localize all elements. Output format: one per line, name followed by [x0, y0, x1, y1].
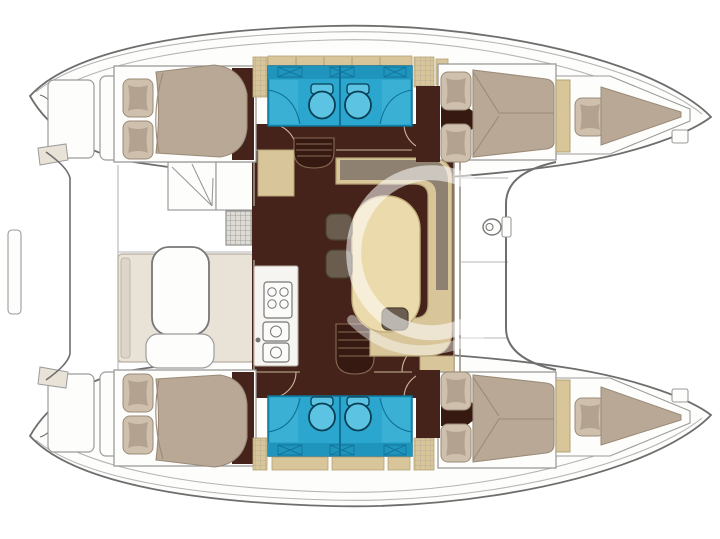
port-hull-steps: [294, 138, 334, 168]
port-bow-fitting: [672, 130, 688, 143]
cockpit-grate-grid: [226, 211, 252, 245]
dinghy-davit: [8, 230, 21, 314]
shower-tray-right: [382, 398, 410, 442]
locker-texture: [414, 57, 434, 87]
pillow: [441, 72, 471, 110]
pillow: [123, 79, 153, 117]
cockpit-bench-back: [121, 258, 130, 358]
cockpit-table: [152, 247, 209, 335]
starboard-fwd-bulkhead: [556, 380, 570, 452]
port-aft-bed: [156, 65, 247, 157]
locker-texture: [253, 57, 267, 97]
pillow: [441, 124, 471, 162]
pillow: [123, 416, 153, 454]
windlass-box: [502, 217, 511, 237]
pillow: [441, 372, 471, 410]
aft-crossbeam-line: [46, 152, 70, 380]
galley: [254, 266, 298, 366]
toilet: [345, 397, 371, 431]
starboard-boarding-step: [38, 367, 68, 388]
sink-1: [263, 322, 289, 341]
pillow: [123, 374, 153, 412]
starboard-locker-box: [332, 457, 384, 470]
starboard-fwd-corridor: [416, 370, 440, 438]
starboard-locker-box: [272, 457, 328, 470]
cockpit-locker: [216, 162, 254, 210]
starboard-locker-box: [388, 457, 410, 470]
aft-platform: [8, 152, 70, 380]
helm-seat: [146, 334, 214, 368]
sink-2: [263, 343, 289, 362]
starboard-aft-bed: [156, 375, 247, 467]
shower-tray-left: [270, 80, 298, 124]
stove: [264, 282, 292, 318]
pillow: [441, 424, 471, 462]
shower-tray-left: [270, 398, 298, 442]
toilet: [309, 397, 335, 431]
starboard-bathroom: [253, 396, 434, 470]
port-fwd-corridor: [416, 86, 440, 162]
locker-texture: [253, 438, 267, 470]
port-fwd-bulkhead: [556, 80, 570, 152]
nav-cabinet: [420, 356, 454, 372]
galley-faucet: [256, 338, 261, 343]
port-boarding-step: [38, 144, 68, 165]
starboard-bow-fitting: [672, 389, 688, 402]
trampoline-edge: [506, 162, 556, 370]
floorplan-image: [0, 0, 720, 539]
saloon-sideboard: [258, 150, 294, 196]
toilet: [309, 84, 335, 119]
shower-tray-right: [382, 80, 410, 124]
toilet: [345, 84, 371, 119]
pillow: [123, 121, 153, 159]
locker-texture: [414, 438, 434, 470]
catamaran-floorplan: [0, 0, 720, 539]
